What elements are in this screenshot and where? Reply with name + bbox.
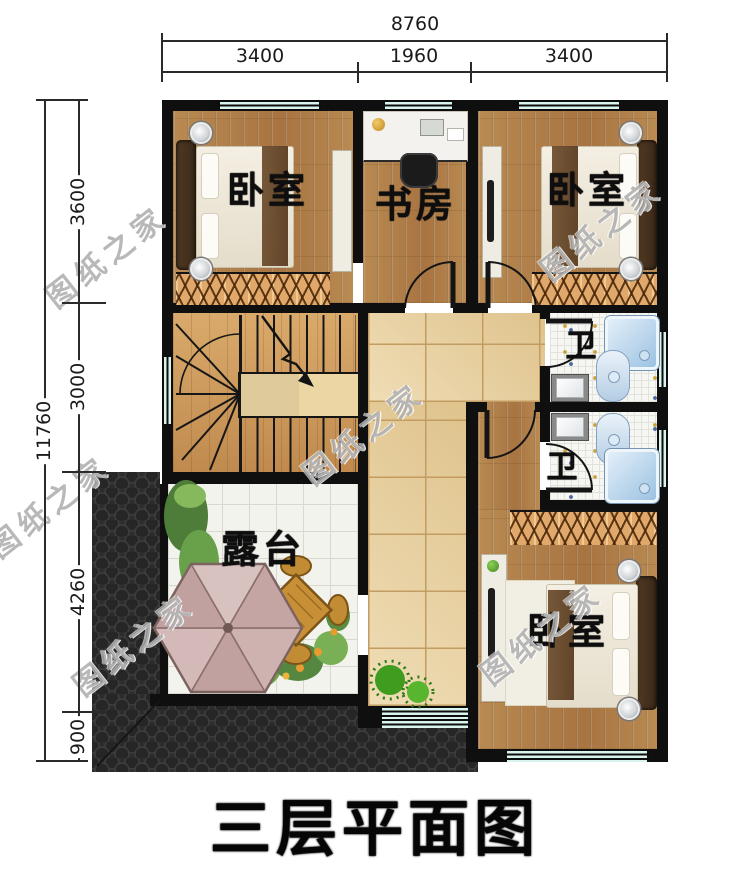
wall-row1-b <box>453 303 488 313</box>
dimension-tick <box>357 62 359 83</box>
papers-icon <box>447 128 464 141</box>
wall-bath-left-a <box>540 313 550 319</box>
dimension-value: 3600 <box>67 175 89 229</box>
window-top-bedroom-right <box>517 100 621 111</box>
sink-vanity-icon <box>551 374 589 402</box>
bed-headboard <box>176 140 196 270</box>
bedroom-entry-floor <box>478 402 540 510</box>
wardrobe-bedroom-bottom-right <box>510 510 657 545</box>
desk-lamp-icon <box>372 118 385 131</box>
pillow <box>201 153 219 199</box>
pillow <box>612 592 630 640</box>
wall-terrace-right-a <box>358 484 368 595</box>
dimension-tick <box>470 62 472 83</box>
window-corridor-bottom <box>380 706 470 728</box>
bedside-lamp-icon <box>618 698 640 720</box>
tv-icon <box>487 180 494 242</box>
pillow <box>612 648 630 696</box>
bedside-lamp-icon <box>620 122 642 144</box>
bedside-lamp-icon <box>190 258 212 280</box>
stair-landing <box>238 372 360 418</box>
wall-bath-divider <box>540 402 668 412</box>
hall-floor-corridor <box>368 402 466 706</box>
dimension-value: 8760 <box>388 13 442 35</box>
watermark: 图纸之家 <box>35 193 176 316</box>
dimension-tick <box>161 33 163 82</box>
bedside-lamp-icon <box>620 258 642 280</box>
dimension-tick <box>666 33 668 82</box>
toilet-icon <box>596 350 630 402</box>
dimension-value: 900 <box>67 716 89 758</box>
stair-flight-upper <box>240 315 356 372</box>
laptop-icon <box>420 119 444 136</box>
wall-terrace-bottom <box>150 694 368 706</box>
bedroom-top-left-label: 卧室 <box>227 160 309 214</box>
dimension-value: 1960 <box>387 45 441 67</box>
dimension-tick <box>62 471 106 473</box>
dimension-tick <box>62 711 106 713</box>
dimension-value: 11760 <box>33 398 55 464</box>
wall-hall-entry-a <box>466 402 487 412</box>
terrace-floor <box>168 484 358 694</box>
bedside-lamp-icon <box>618 560 640 582</box>
study-label: 书房 <box>375 174 457 228</box>
wall-terrace-right-b <box>358 655 368 706</box>
dimension-tick <box>36 99 88 101</box>
dimension-line <box>162 71 668 73</box>
dimension-tick <box>62 302 106 304</box>
dimension-value: 3000 <box>67 360 89 414</box>
floor-plan-page: 卧室 书房 卧室 卫 卫 露台 卧室 图纸之家 图纸之家 图纸之家 图纸之家 图… <box>0 0 750 883</box>
dimension-line <box>162 40 668 42</box>
dimension-value: 3400 <box>233 45 287 67</box>
window-top-study <box>383 100 454 111</box>
bath-lower-label: 卫 <box>547 442 582 487</box>
dimension-value: 4260 <box>67 565 89 619</box>
shower-icon <box>605 449 659 503</box>
bath-upper-label: 卫 <box>566 321 601 366</box>
bed-headboard <box>636 576 657 710</box>
sink-vanity-icon <box>551 413 589 441</box>
page-title: 三层平面图 <box>210 779 540 868</box>
pillow <box>201 213 219 259</box>
dresser <box>332 150 352 272</box>
plant-icon <box>487 560 499 572</box>
terrace-label: 露台 <box>221 519 305 574</box>
window-stair-left <box>162 355 173 426</box>
window-top-bedroom-left <box>218 100 321 111</box>
wall-bedroomtl-study <box>353 111 363 263</box>
window-bedroom-br-bottom <box>505 749 649 762</box>
dimension-tick <box>36 760 88 762</box>
dimension-value: 3400 <box>542 45 596 67</box>
bedside-lamp-icon <box>190 122 212 144</box>
